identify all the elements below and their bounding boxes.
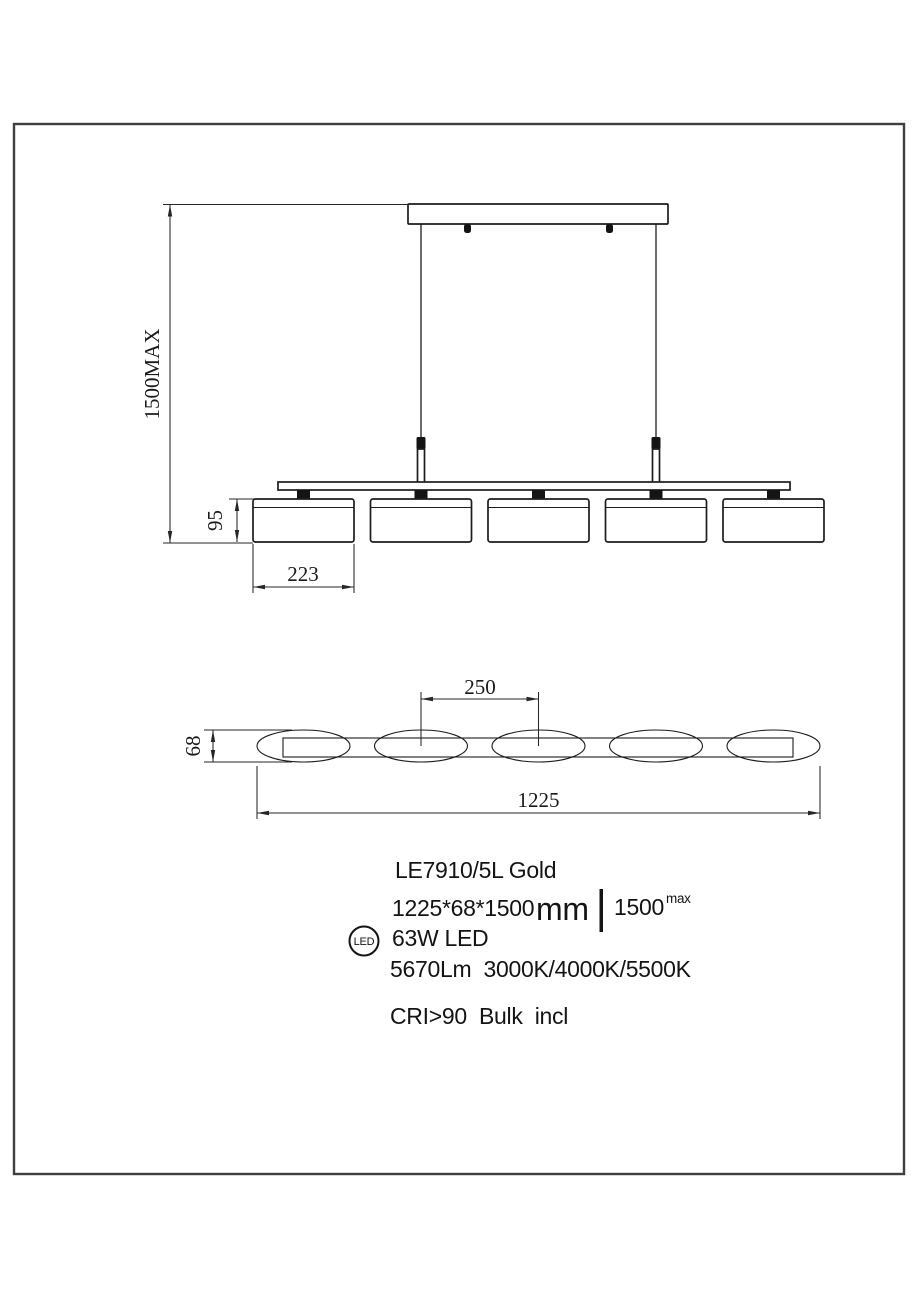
max-drop-superscript: max — [666, 891, 691, 906]
dim-label-1225: 1225 — [518, 788, 560, 812]
dimension-oval-spacing: 250 — [421, 675, 539, 746]
canopy-screw-right — [606, 224, 613, 233]
dimension-max-drop: 1500MAX — [140, 205, 408, 544]
size-unit: mm — [536, 891, 589, 927]
lamp-shade — [606, 499, 707, 542]
support-bar — [278, 482, 790, 490]
lumen-color-temp: 5670Lm 3000K/4000K/5500K — [390, 956, 692, 982]
led-badge-label: LED — [354, 936, 375, 948]
lamp-shade — [253, 499, 354, 542]
wire-gripper-right — [652, 437, 661, 483]
spec-sheet-page: 1500MAX 95 223 — [0, 0, 919, 1300]
dim-label-250: 250 — [464, 675, 496, 699]
cri-line: CRI>90 Bulk incl — [390, 1003, 568, 1029]
canopy-screw-left — [464, 224, 471, 233]
top-plan-view: 250 68 1225 — [181, 675, 820, 819]
lamp-shade — [488, 499, 589, 542]
ceiling-canopy — [408, 204, 668, 224]
max-drop-value: 1500 — [614, 894, 664, 920]
dim-label-68: 68 — [181, 736, 205, 757]
lamp-shade — [371, 499, 472, 542]
wattage-value: 63W LED — [392, 925, 488, 951]
dim-label-1500max: 1500MAX — [140, 328, 164, 419]
front-elevation-view: 1500MAX 95 223 — [140, 204, 824, 593]
model-name: LE7910/5L Gold — [395, 857, 556, 883]
lamp-shade — [723, 499, 824, 542]
dimension-shade-height: 95 — [203, 499, 254, 542]
shade-mounts — [297, 490, 780, 499]
wire-gripper-left — [417, 437, 426, 483]
wattage-line: LED 63W LED — [350, 925, 489, 956]
divider-bar — [600, 889, 604, 932]
spec-text-block: LE7910/5L Gold 1225*68*1500 mm 1500 max … — [350, 857, 692, 1029]
dimension-overall-length: 1225 — [257, 766, 820, 819]
lamp-shades — [253, 499, 824, 542]
dim-label-223: 223 — [287, 562, 319, 586]
dim-label-95: 95 — [203, 510, 227, 531]
dimension-body-depth: 68 — [181, 730, 292, 762]
dimension-shade-width: 223 — [253, 544, 354, 593]
size-value: 1225*68*1500 — [392, 895, 534, 921]
